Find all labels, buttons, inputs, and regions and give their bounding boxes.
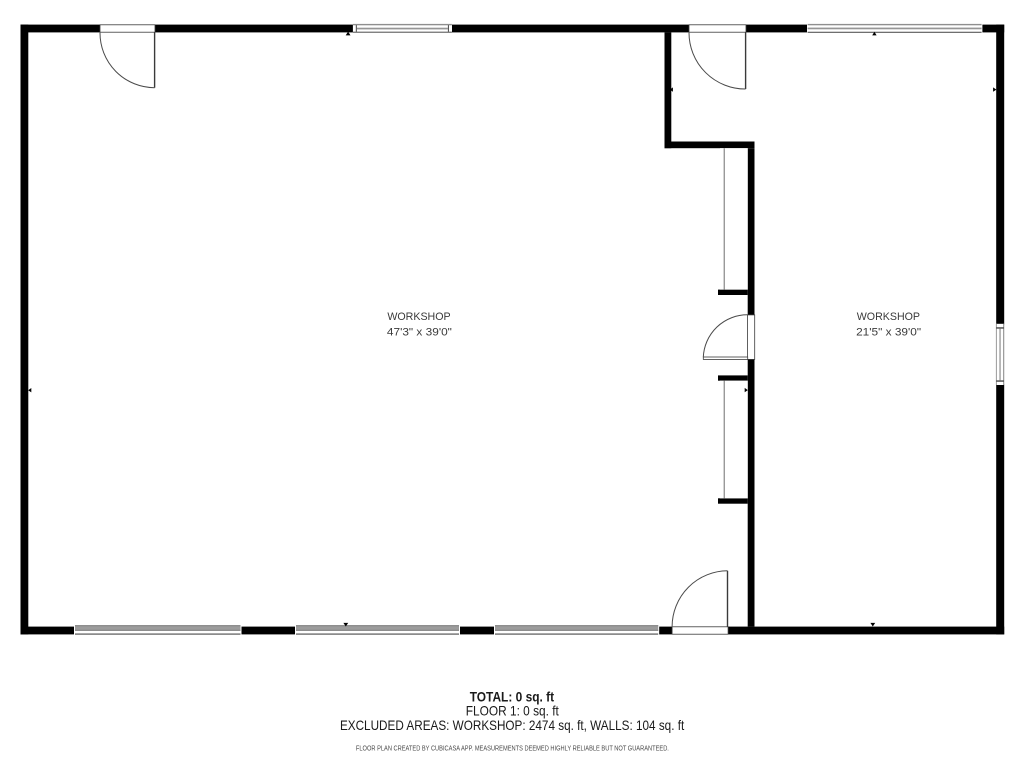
svg-text:WORKSHOP: WORKSHOP: [857, 311, 920, 323]
svg-text:FLOOR PLAN CREATED BY CUBICASA: FLOOR PLAN CREATED BY CUBICASA APP. MEAS…: [356, 745, 669, 752]
svg-text:EXCLUDED AREAS: WORKSHOP: 2474: EXCLUDED AREAS: WORKSHOP: 2474 sq. ft, W…: [340, 717, 684, 733]
svg-text:47'3" x 39'0": 47'3" x 39'0": [387, 327, 452, 339]
svg-text:WORKSHOP: WORKSHOP: [387, 311, 450, 323]
svg-text:21'5" x 39'0": 21'5" x 39'0": [856, 327, 921, 339]
